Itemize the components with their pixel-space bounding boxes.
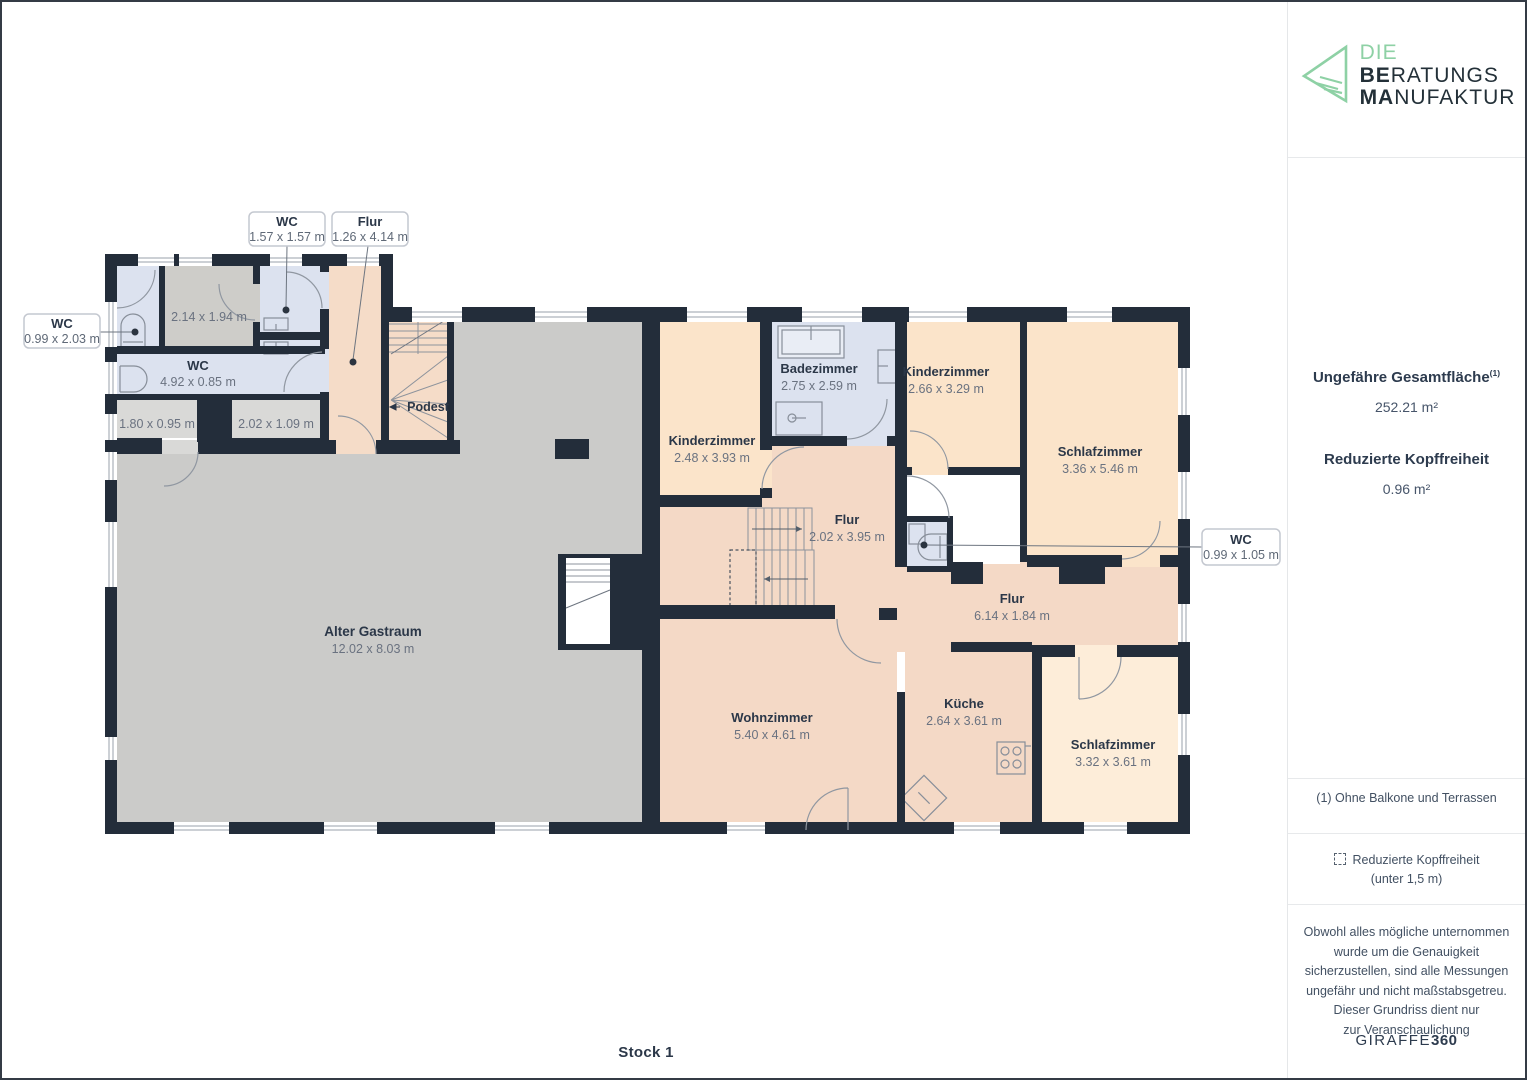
total-area-value: 252.21 m² — [1288, 399, 1525, 415]
reduced-headroom-legend: Reduzierte Kopffreiheit (unter 1,5 m) — [1288, 851, 1525, 889]
disclaimer-line: sicherzustellen, sind alle Messungen — [1288, 962, 1525, 982]
logo-word2-rest: RATUNGS — [1391, 64, 1499, 87]
room-label-flur-mitte-name: Flur — [835, 512, 860, 527]
room-label-kueche-name: Küche — [944, 696, 984, 711]
room-label-wohnzimmer-dims: 5.40 x 4.61 m — [734, 728, 810, 742]
room-label-wohnzimmer-name: Wohnzimmer — [731, 710, 812, 725]
room-label-wc-corridor-dims: 4.92 x 0.85 m — [160, 375, 236, 389]
logo-wordmark: DIE BERATUNGS MANUFAKTUR — [1360, 42, 1516, 110]
room-label-badezimmer-name: Badezimmer — [780, 361, 857, 376]
room-label-schlafzimmer2-name: Schlafzimmer — [1071, 737, 1156, 752]
callout-wc-top-title: WC — [276, 214, 298, 229]
area-footnote: (1) Ohne Balkone und Terrassen — [1288, 791, 1525, 805]
legend-sub: (unter 1,5 m) — [1288, 870, 1525, 889]
logo-word2-bold: BE — [1360, 64, 1391, 87]
callout-wc-top-dims: 1.57 x 1.57 m — [249, 230, 325, 244]
disclaimer-line: ungefähr und nicht maßstabsgetreu. — [1288, 982, 1525, 1002]
room-label-kueche-dims: 2.64 x 3.61 m — [926, 714, 1002, 728]
giraffe360-brand: GIRAFFE360 — [1288, 1032, 1525, 1049]
legend-label: Reduzierte Kopffreiheit — [1353, 853, 1480, 867]
room-label-badezimmer-dims: 2.75 x 2.59 m — [781, 379, 857, 393]
callout-wc-left-title: WC — [51, 316, 73, 331]
logo-word-die: DIE — [1360, 42, 1516, 65]
floor-plan-drawing: 2.14 x 1.94 m WC 4.92 x 0.85 m 1.80 x 0.… — [2, 2, 1290, 1078]
room-label-kinderzimmer2-dims: 2.66 x 3.29 m — [908, 382, 984, 396]
callout-wc-right-dims: 0.99 x 1.05 m — [1203, 548, 1279, 562]
room-label-kinderzimmer1-dims: 2.48 x 3.93 m — [674, 451, 750, 465]
room-label-flur-unten-name: Flur — [1000, 591, 1025, 606]
floor-plan-area: 2.14 x 1.94 m WC 4.92 x 0.85 m 1.80 x 0.… — [2, 2, 1290, 1078]
brand-suffix: 360 — [1431, 1032, 1458, 1049]
room-label-podest: Podest — [407, 400, 450, 414]
sidebar: DIE BERATUNGS MANUFAKTUR Ungefähre Gesam… — [1287, 2, 1525, 1078]
room-label-flur-mitte-dims: 2.02 x 3.95 m — [809, 530, 885, 544]
brand-logo: DIE BERATUNGS MANUFAKTUR — [1288, 42, 1525, 110]
reduced-headroom-value: 0.96 m² — [1288, 481, 1525, 497]
disclaimer-line: Obwohl alles mögliche unternommen — [1288, 923, 1525, 943]
room-label-niche-left: 1.80 x 0.95 m — [119, 417, 195, 431]
room-label-schlafzimmer2-dims: 3.32 x 3.61 m — [1075, 755, 1151, 769]
logo-word3-bold: MA — [1360, 86, 1395, 109]
sidebar-divider-1 — [1288, 157, 1525, 158]
disclaimer: Obwohl alles mögliche unternommen wurde … — [1288, 923, 1525, 1040]
room-label-gastraum-dims: 12.02 x 8.03 m — [332, 642, 415, 656]
room-label-schlafzimmer1-name: Schlafzimmer — [1058, 444, 1143, 459]
sidebar-divider-3 — [1288, 833, 1525, 834]
dashed-area-icon — [1334, 853, 1346, 865]
callout-wc-left-dims: 0.99 x 2.03 m — [24, 332, 100, 346]
callout-wc-right-title: WC — [1230, 532, 1252, 547]
logo-triangle-icon — [1298, 43, 1350, 109]
stairwell-void — [566, 558, 610, 644]
area-summary: Ungefähre Gesamtfläche(1) 252.21 m² Redu… — [1288, 368, 1525, 497]
disclaimer-line: wurde um die Genauigkeit — [1288, 943, 1525, 963]
room-label-gastraum-name: Alter Gastraum — [324, 624, 422, 639]
logo-word3-rest: NUFAKTUR — [1394, 86, 1515, 109]
total-area-label: Ungefähre Gesamtfläche(1) — [1288, 368, 1525, 386]
screenshot-root: 2.14 x 1.94 m WC 4.92 x 0.85 m 1.80 x 0.… — [0, 0, 1527, 1080]
total-area-footnote-marker: (1) — [1490, 368, 1500, 378]
room-label-flur-unten-dims: 6.14 x 1.84 m — [974, 609, 1050, 623]
room-label-schlafzimmer1-dims: 3.36 x 5.46 m — [1062, 462, 1138, 476]
room-label-kinderzimmer1-name: Kinderzimmer — [669, 433, 756, 448]
sidebar-divider-2 — [1288, 778, 1525, 779]
logo-word-beratungs: BERATUNGS — [1360, 65, 1516, 88]
room-label-wc-corridor-name: WC — [187, 358, 209, 373]
logo-word-manufaktur: MANUFAKTUR — [1360, 87, 1516, 110]
callout-flur-top-title: Flur — [358, 214, 383, 229]
room-label-storage: 2.14 x 1.94 m — [171, 310, 247, 324]
room-label-niche-right: 2.02 x 1.09 m — [238, 417, 314, 431]
disclaimer-line: Dieser Grundriss dient nur — [1288, 1001, 1525, 1021]
callout-flur-top-dims: 1.26 x 4.14 m — [332, 230, 408, 244]
reduced-headroom-label: Reduzierte Kopffreiheit — [1288, 451, 1525, 468]
brand-name: GIRAFFE — [1355, 1032, 1431, 1049]
floor-title: Stock 1 — [2, 1044, 1290, 1061]
room-label-kinderzimmer2-name: Kinderzimmer — [903, 364, 990, 379]
sidebar-divider-4 — [1288, 904, 1525, 905]
